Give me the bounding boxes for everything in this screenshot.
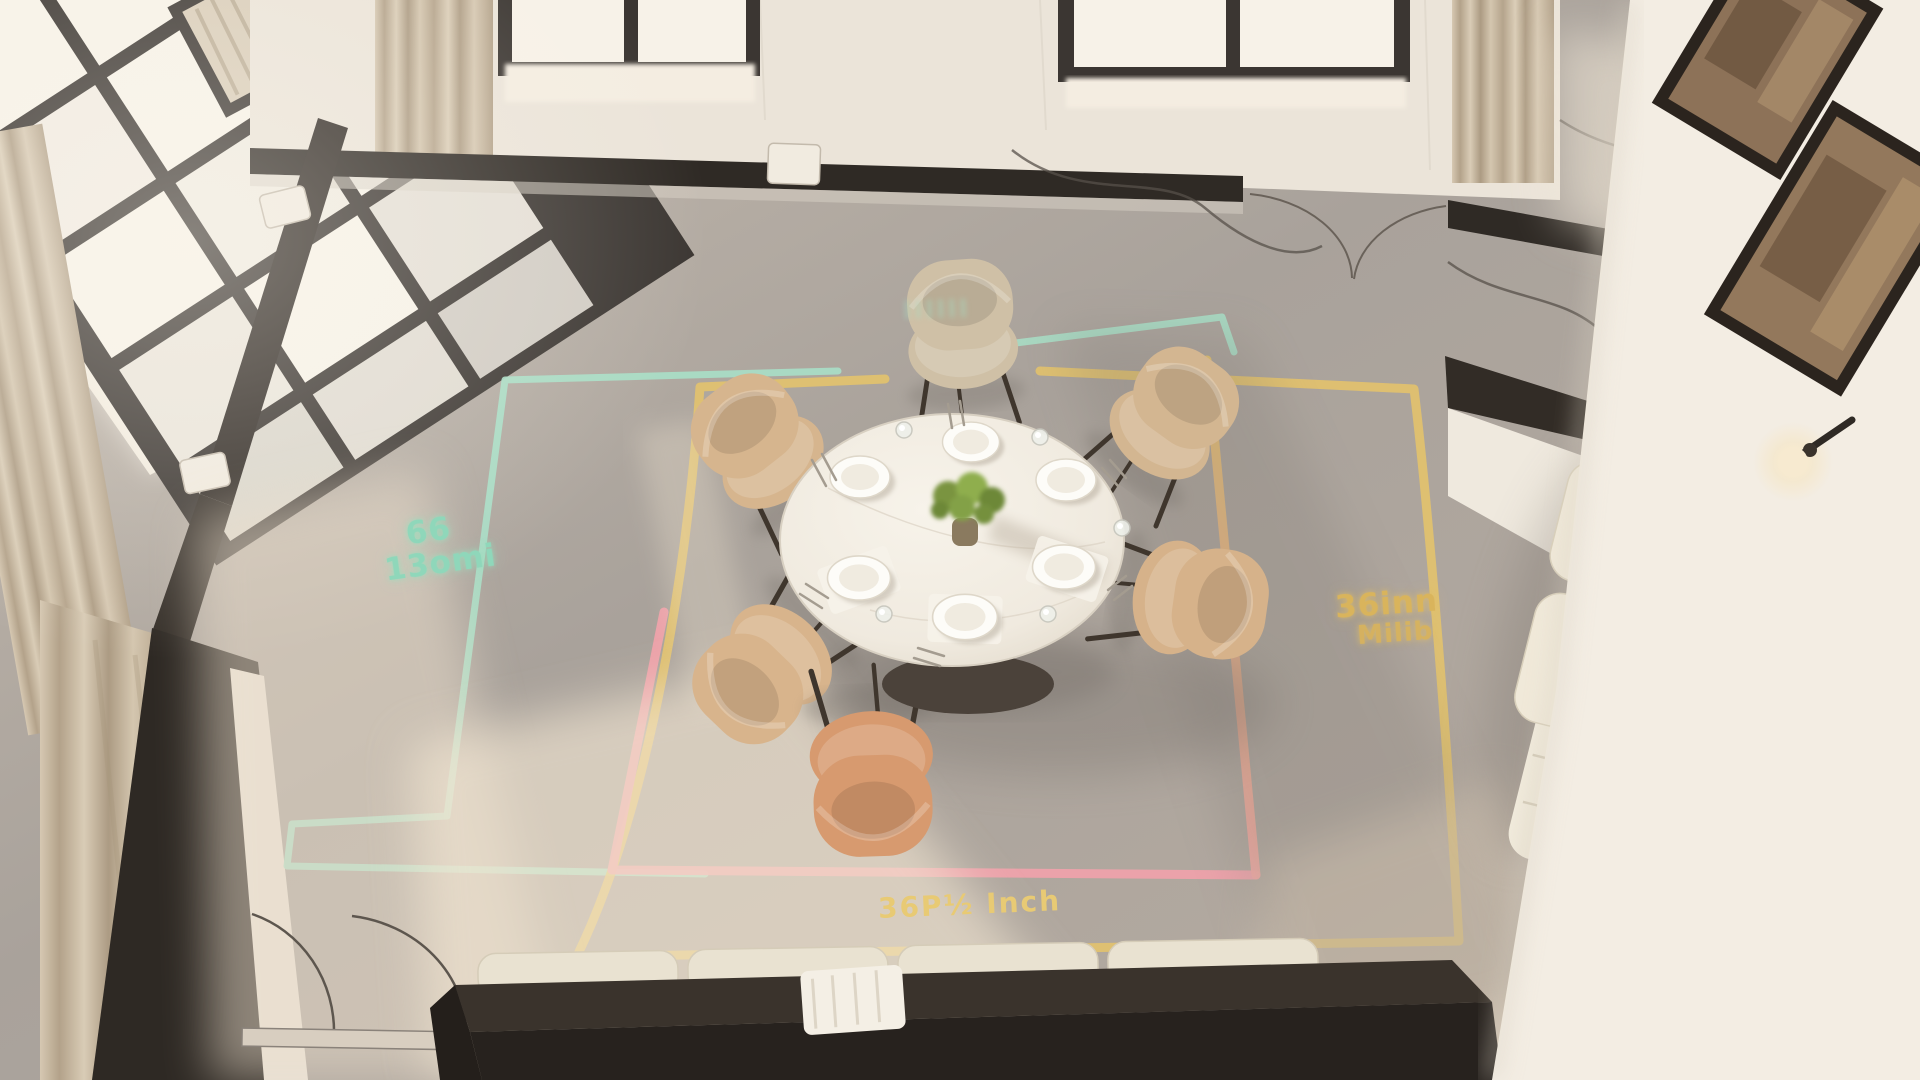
clearance-label-right: 36inn Milib [1334, 584, 1441, 651]
window-back-right [1058, 0, 1410, 108]
interior-room-top-view-render: 66 13omi llllll 36inn Milib 36P½ Inch [0, 0, 1920, 1080]
door-threshold [242, 1028, 464, 1050]
drinking-glass [1032, 429, 1048, 445]
drinking-glass [896, 422, 912, 438]
clearance-label-left: 66 13omi [378, 506, 498, 586]
clearance-label-top-occluded: llllll [903, 297, 971, 325]
curtain-right-of-window [1452, 0, 1554, 183]
drinking-glass [1040, 606, 1056, 622]
clearance-label-bottom: 36P½ Inch [877, 886, 1061, 923]
drinking-glass [876, 606, 892, 622]
throw-blanket [800, 964, 906, 1035]
clearance-label-right-line2: Milib [1356, 617, 1441, 650]
drinking-glass [1114, 520, 1130, 536]
wall-box-back [767, 143, 820, 185]
